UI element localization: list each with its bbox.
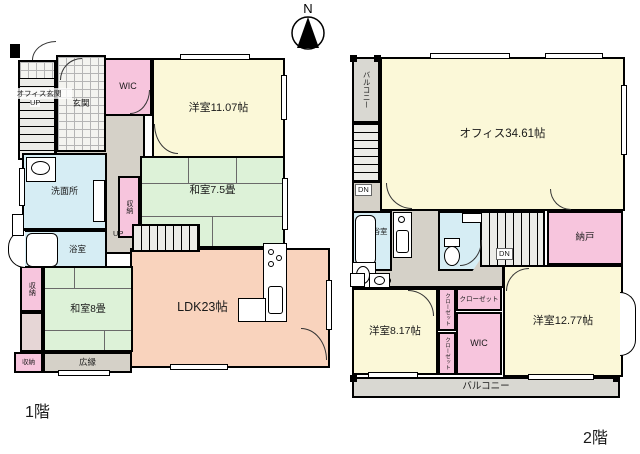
kitchen-island-counter <box>238 298 266 322</box>
balcony-side-label: バルコニー <box>362 71 370 109</box>
toilet-icon <box>31 161 50 175</box>
compass-needle <box>297 17 319 48</box>
floor2-closet-v2: クローゼット <box>438 332 456 375</box>
floor2-wic: WIC <box>456 312 502 375</box>
toilet-sink-icon <box>462 213 482 223</box>
balcony-bottom-label: バルコニー <box>462 382 509 392</box>
washbasin-icon <box>93 180 105 222</box>
window <box>19 168 25 206</box>
tatami-8-label: 和室8畳 <box>70 304 106 315</box>
balcony-post <box>374 55 381 62</box>
tatami-line <box>212 216 213 246</box>
office-entrance-up-label: UP <box>30 99 40 107</box>
closet-v1-label: クローゼット <box>444 293 450 326</box>
bedroom-817-label: 洋室8.17帖 <box>369 326 421 338</box>
basin-bowl-icon <box>396 230 409 253</box>
closet-v2-label: クローゼット <box>444 337 450 370</box>
north-compass-icon: N <box>288 0 332 54</box>
bow-window <box>620 292 636 356</box>
floor2-closet-h: クローゼット <box>456 288 502 311</box>
window <box>368 372 418 378</box>
tatami-75-label: 和室7.5畳 <box>189 185 235 197</box>
balcony-post <box>350 375 357 382</box>
window <box>180 54 250 60</box>
floor2-closet-v1: クローゼット <box>438 288 456 331</box>
floor1-office-entrance <box>18 60 56 160</box>
bathtub-icon <box>26 233 58 267</box>
tatami-line <box>142 183 283 184</box>
floor2-wic-label: WIC <box>470 339 488 349</box>
window <box>170 364 228 370</box>
window <box>326 280 332 330</box>
window <box>545 53 603 59</box>
floor1-wic: WIC <box>104 58 152 116</box>
office-label: オフィス34.61帖 <box>459 128 545 141</box>
floor2-stairs-mid-dn-label: DN <box>496 248 513 260</box>
stove-burner-icon <box>268 261 274 267</box>
laundry-sink-bowl-icon <box>374 276 385 285</box>
stove-burner-icon <box>268 249 274 255</box>
floor1-bath-label: 浴室 <box>69 245 86 254</box>
office-entrance-door-arc <box>32 41 56 60</box>
window <box>621 85 627 155</box>
ldk-label: LDK23帖 <box>177 301 228 315</box>
kitchen-sink-icon <box>268 286 283 314</box>
storage-left-label: 収納 <box>28 282 36 296</box>
balcony-post <box>350 55 357 62</box>
toilet2-icon <box>444 246 460 266</box>
window <box>528 374 594 380</box>
stove-burner-icon <box>276 255 282 261</box>
floor1-storage-bottom: 収納 <box>14 352 43 373</box>
north-label: N <box>303 1 312 16</box>
floor2-balcony-side: バルコニー <box>352 57 380 123</box>
storage-mid-label: 収納 <box>125 200 133 214</box>
floor2-office: オフィス34.61帖 <box>380 57 625 211</box>
floor2-label: 2階 <box>583 424 608 448</box>
genkan-label: 玄関 <box>72 99 89 108</box>
wall-post <box>10 44 20 58</box>
window <box>58 370 110 376</box>
floor1-label: 1階 <box>25 398 50 422</box>
floor2-balcony-bottom: バルコニー <box>352 377 620 398</box>
tatami-line <box>45 330 131 331</box>
floor2-storage-room: 納戸 <box>547 211 623 265</box>
faucet-icon <box>398 216 405 223</box>
window <box>281 75 287 120</box>
washer-icon <box>350 273 365 287</box>
tatami-line <box>104 330 105 350</box>
tatami-line <box>188 158 189 184</box>
utility-box <box>12 214 24 236</box>
floor2-stairs-top <box>352 123 380 183</box>
floor1-stairs <box>132 224 200 252</box>
floor1-ldk: LDK23帖 <box>130 248 330 368</box>
bedroom-1107-label: 洋室11.07帖 <box>189 102 249 114</box>
floor1-tatami-8: 和室8畳 <box>43 266 133 352</box>
storage-room-label: 納戸 <box>575 233 594 243</box>
floor1-storage-left: 収納 <box>20 266 43 312</box>
storage-bottom-label: 収納 <box>22 359 35 366</box>
tatami-line <box>45 288 131 289</box>
floor2-stairs-dn-label: DN <box>355 184 372 196</box>
tatami-line <box>236 158 237 184</box>
floor1-stairs-up-label: UP <box>113 230 123 238</box>
floorplan-canvas: N オフィス玄関 UP 玄関 WIC 洋室11.07帖 洗面所 浴室 収納 <box>0 0 640 454</box>
balcony-post <box>613 375 620 382</box>
window <box>430 53 510 59</box>
window <box>282 178 288 230</box>
closet-h-label: クローゼット <box>460 296 499 303</box>
hiroen-label: 広縁 <box>79 358 96 367</box>
tatami-line <box>74 268 75 288</box>
washroom-label: 洗面所 <box>51 187 78 197</box>
floor1-storage-left2 <box>20 312 43 352</box>
bathtub2-icon <box>355 215 376 265</box>
bedroom-1277-label: 洋室12.77帖 <box>533 315 594 327</box>
